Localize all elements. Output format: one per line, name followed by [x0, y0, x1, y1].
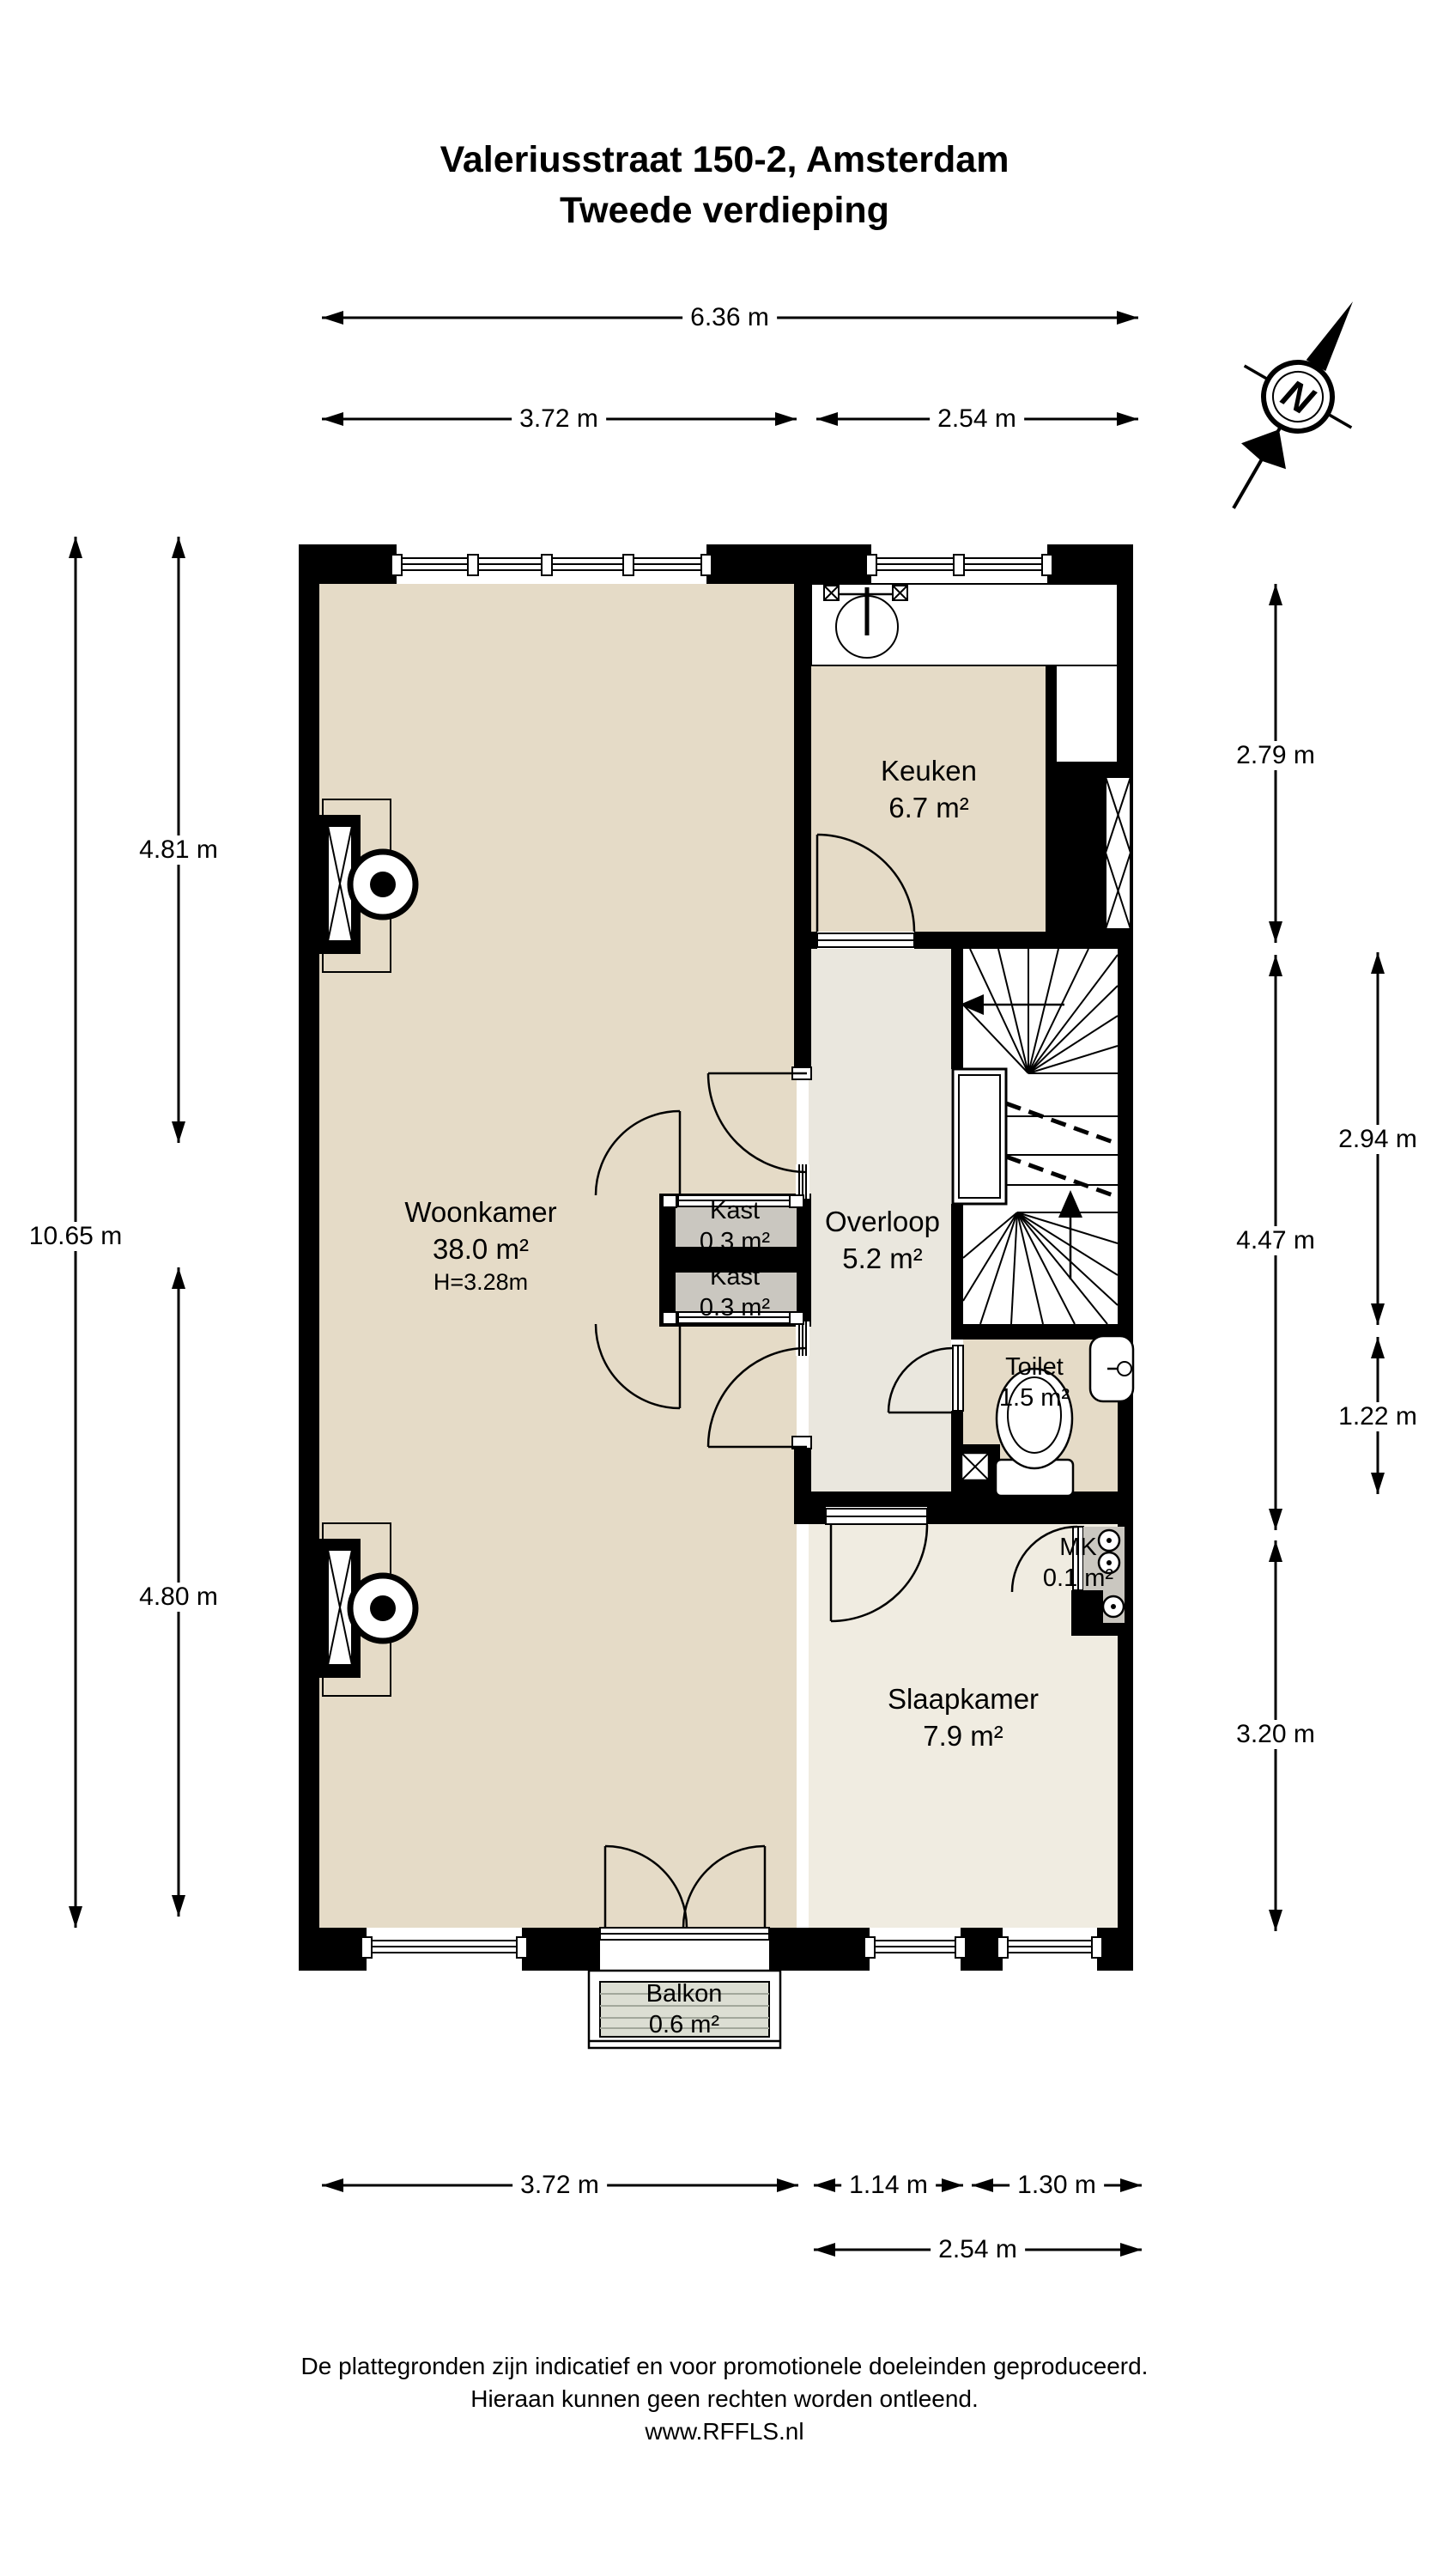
kitchen-counter [811, 584, 1118, 665]
window-bottom-slaapkamer-1 [864, 1930, 966, 1970]
room-label-mk: MK 0.1 m² [1043, 1532, 1113, 1594]
dim-bottom-middle: 1.14 m [841, 2171, 936, 2200]
window-bottom-woonkamer [361, 1930, 527, 1970]
shaft-toilet [961, 1453, 989, 1480]
dim-bottom-total: 2.54 m [931, 2235, 1025, 2264]
disclaimer: De plattegronden zijn indicatief en voor… [0, 2350, 1449, 2448]
page-title: Valeriusstraat 150-2, Amsterdam Tweede v… [0, 135, 1449, 236]
dim-right-slaapkamer: 3.20 m [1228, 1720, 1323, 1749]
window-top-woonkamer [391, 553, 712, 584]
sill-keuken-door [817, 933, 914, 947]
room-label-woonkamer: Woonkamer 38.0 m² H=3.28m [404, 1194, 556, 1297]
sill-balkon-door [600, 1928, 769, 1940]
window-top-keuken [866, 553, 1052, 584]
room-label-toilet: Toilet 1.5 m² [999, 1352, 1070, 1413]
dim-top-right: 2.54 m [930, 404, 1024, 434]
sill-toilet-door [953, 1346, 963, 1411]
room-label-overloop: Overloop 5.2 m² [825, 1203, 940, 1277]
title-address: Valeriusstraat 150-2, Amsterdam [0, 135, 1449, 185]
title-floor: Tweede verdieping [0, 185, 1449, 236]
glazed-panel-lower [796, 1321, 809, 1356]
disclaimer-line-2: Hieraan kunnen geen rechten worden ontle… [0, 2383, 1449, 2415]
floorplan-page: N Valeriusstraat 150-2, Amsterdam Tweede… [0, 0, 1449, 2576]
dim-right-inner-upper: 2.94 m [1331, 1125, 1425, 1154]
toilet-basin-icon [1090, 1336, 1133, 1401]
sill-slaapkamer-door [826, 1509, 927, 1524]
window-bottom-slaapkamer-2 [997, 1930, 1102, 1970]
disclaimer-line-1: De plattegronden zijn indicatief en voor… [0, 2350, 1449, 2383]
north-compass-icon: N [1180, 270, 1407, 539]
room-label-kast-onder: Kast 0.3 m² [700, 1261, 770, 1323]
dim-left-total: 10.65 m [21, 1222, 130, 1251]
disclaimer-website: www.RFFLS.nl [0, 2415, 1449, 2448]
glazed-panel-upper [796, 1164, 809, 1199]
dim-bottom-right: 1.30 m [1009, 2171, 1104, 2200]
dim-top-total: 6.36 m [682, 303, 777, 332]
dim-right-middle: 4.47 m [1228, 1226, 1323, 1255]
stair-void-railing [953, 1069, 1006, 1204]
dim-left-upper: 4.81 m [131, 835, 226, 865]
room-label-keuken: Keuken 6.7 m² [881, 752, 977, 826]
dim-top-left: 3.72 m [512, 404, 606, 434]
room-label-balkon: Balkon 0.6 m² [646, 1978, 723, 2040]
dim-bottom-left: 3.72 m [512, 2171, 607, 2200]
keuken-alcove [1056, 665, 1118, 762]
room-label-slaapkamer: Slaapkamer 7.9 m² [888, 1680, 1039, 1754]
shaft-keuken [1106, 777, 1131, 929]
dim-right-keuken: 2.79 m [1228, 741, 1323, 770]
dim-right-inner-lower: 1.22 m [1331, 1402, 1425, 1431]
dim-left-lower: 4.80 m [131, 1583, 226, 1612]
room-label-kast-boven: Kast 0.3 m² [700, 1195, 770, 1257]
